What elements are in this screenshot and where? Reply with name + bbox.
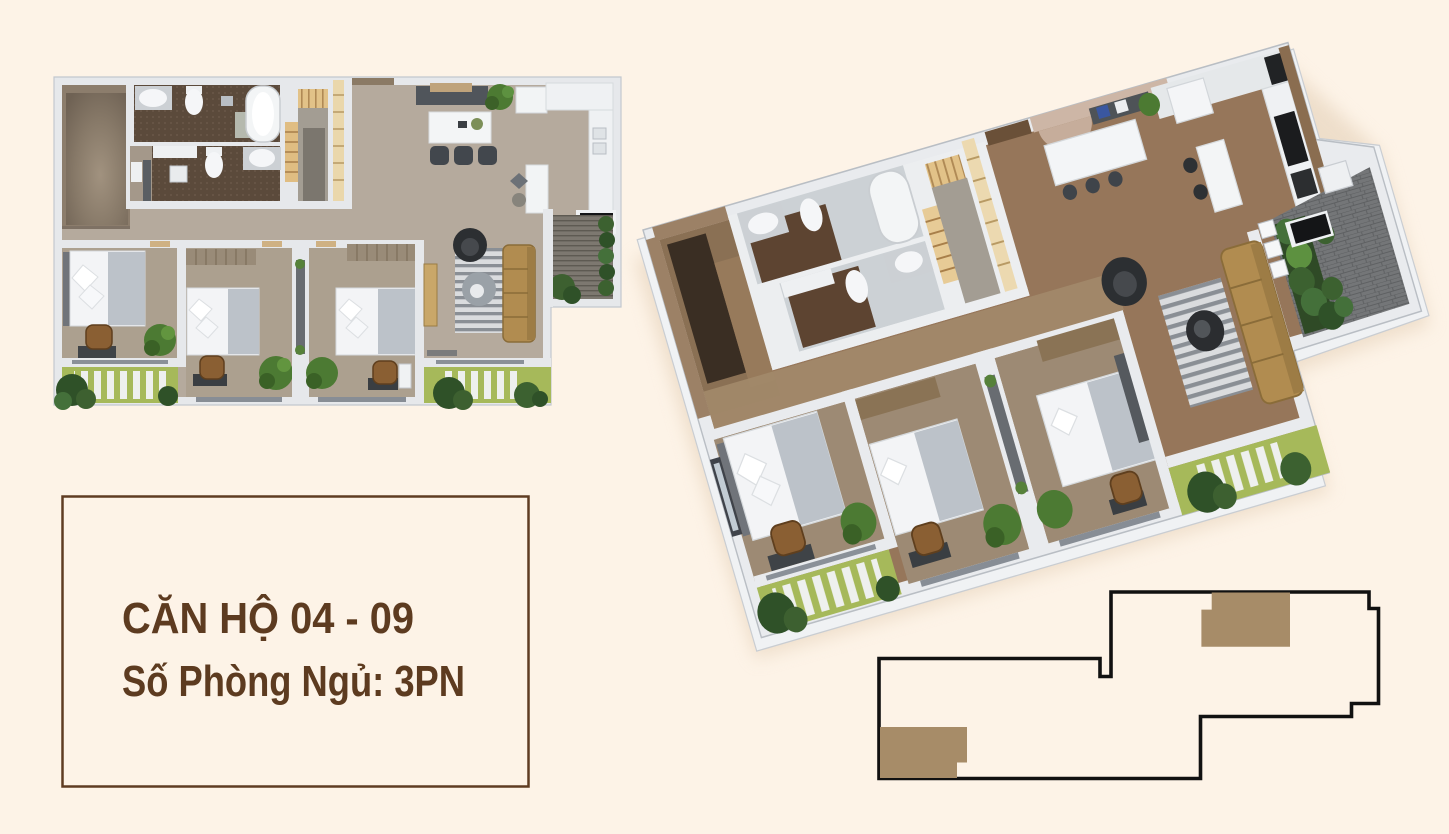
svg-text:Số Phòng Ngủ: 3PN: Số Phòng Ngủ: 3PN [122, 657, 465, 706]
svg-text:CĂN HỘ 04 - 09: CĂN HỘ 04 - 09 [122, 592, 414, 643]
